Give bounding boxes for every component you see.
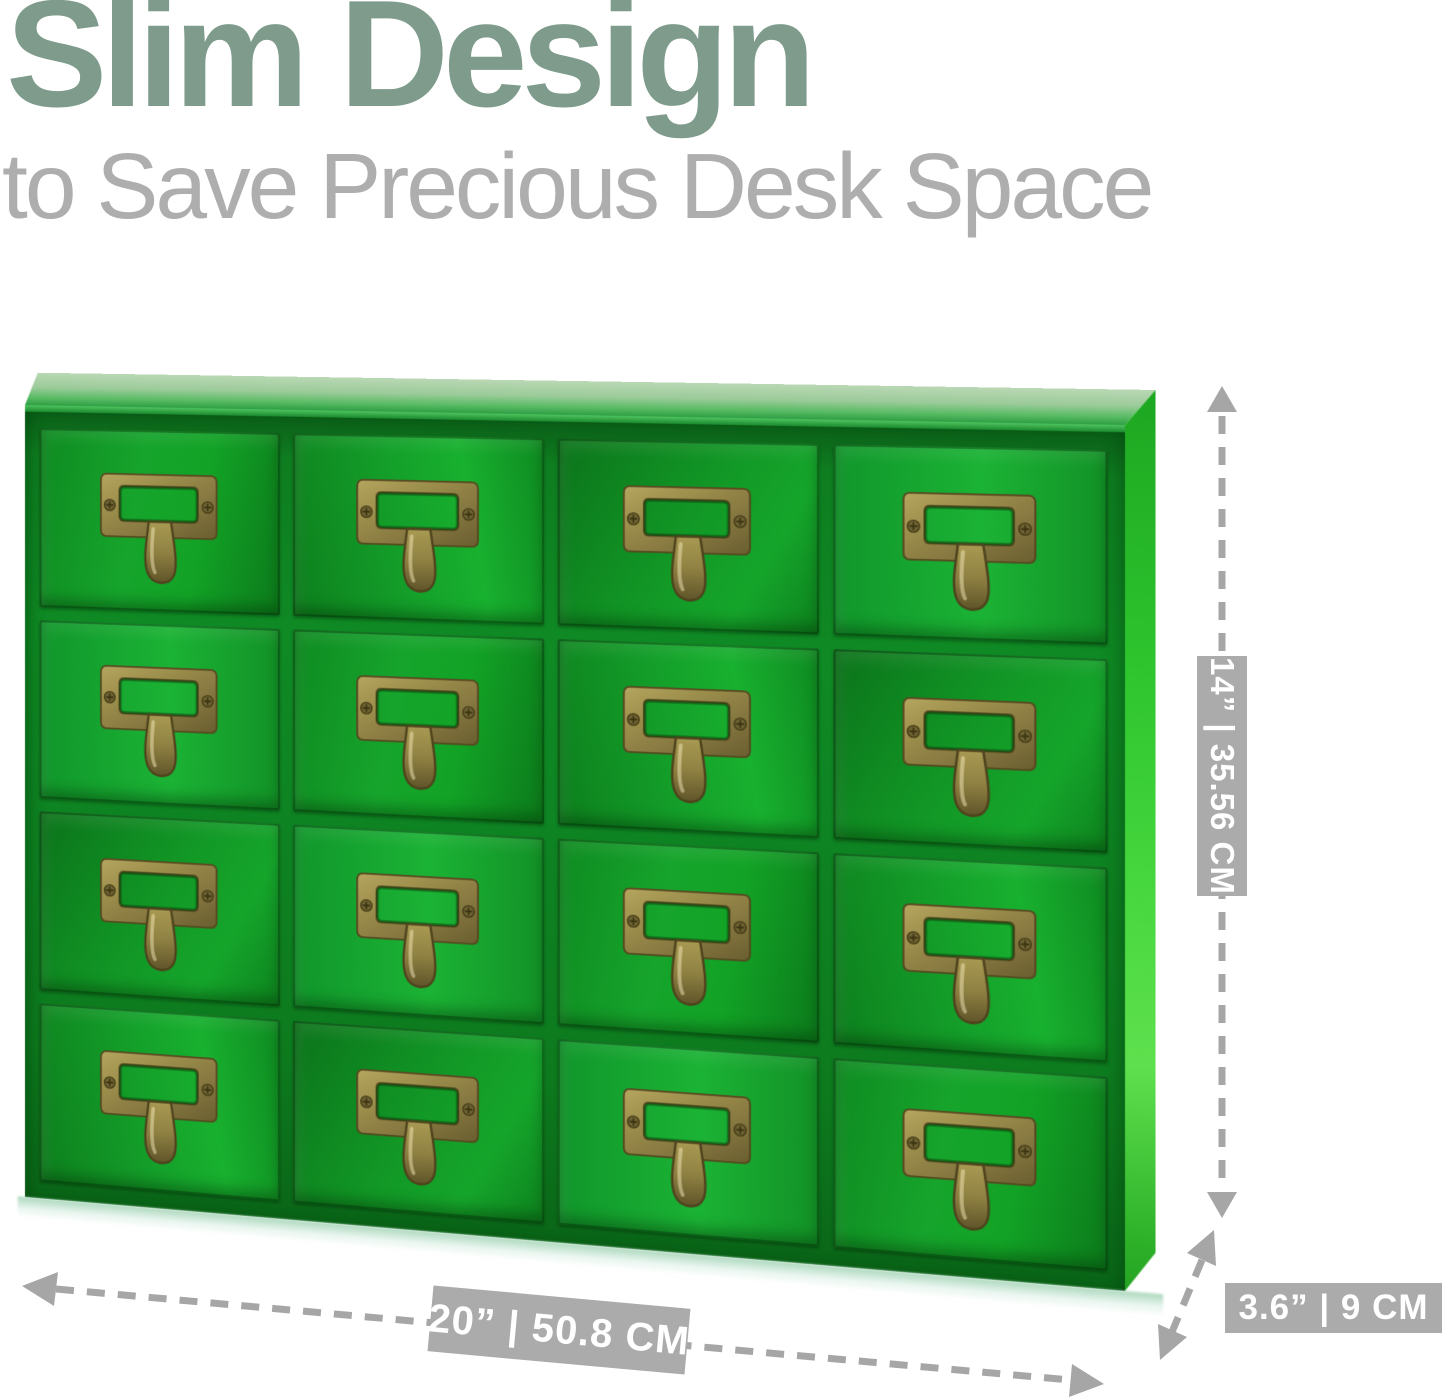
brass-label-pull-icon	[901, 489, 1039, 623]
drawer	[834, 853, 1108, 1062]
screw-icon	[1019, 730, 1031, 742]
pull-hook	[145, 908, 175, 971]
screw-icon	[1019, 938, 1031, 951]
brass-label-pull-icon	[621, 885, 753, 1020]
screw-icon	[628, 513, 640, 525]
pull-hook	[403, 924, 435, 988]
drawer	[293, 629, 544, 824]
screw-icon	[735, 516, 747, 528]
brass-label-pull-icon	[901, 695, 1039, 831]
screw-icon	[202, 1084, 213, 1096]
pull-hook	[673, 940, 706, 1006]
drawer-grid	[25, 405, 1125, 1291]
drawer	[557, 639, 819, 838]
screw-icon	[463, 707, 474, 719]
label-window	[926, 507, 1013, 545]
pull-hook	[403, 529, 435, 592]
screw-icon	[463, 508, 474, 520]
pull-hook	[403, 726, 435, 790]
drawer	[40, 428, 280, 615]
brass-label-pull-icon	[621, 684, 753, 817]
label-window	[926, 919, 1013, 960]
screw-icon	[202, 502, 213, 513]
pull-hook	[145, 521, 175, 583]
label-window	[120, 680, 197, 716]
screw-icon	[104, 1077, 115, 1089]
page-title: Slim Design	[6, 0, 810, 130]
pull-hook	[954, 544, 989, 610]
brass-label-pull-icon	[98, 856, 219, 985]
brass-label-pull-icon	[354, 870, 480, 1002]
drawer	[834, 649, 1108, 853]
pull-hook	[403, 1121, 435, 1186]
label-window	[377, 493, 457, 529]
page-subtitle: to Save Precious Desk Space	[2, 140, 1151, 233]
screw-icon	[202, 890, 213, 902]
drawer	[557, 1039, 819, 1247]
screw-icon	[1019, 1145, 1031, 1158]
pull-hook	[673, 536, 706, 601]
brass-label-pull-icon	[354, 673, 480, 803]
pull-hook	[954, 957, 989, 1024]
label-window	[926, 1125, 1013, 1167]
screw-icon	[735, 921, 747, 933]
drawer	[557, 439, 819, 634]
arrow-down-icon	[1207, 1192, 1237, 1218]
label-window	[120, 1065, 197, 1104]
screw-icon	[628, 714, 640, 726]
depth-dimension-label: 3.6” | 9 CM	[1225, 1283, 1442, 1333]
cabinet-right-face	[1125, 390, 1156, 1330]
label-window	[926, 713, 1013, 752]
screw-icon	[361, 703, 372, 715]
screw-icon	[361, 899, 372, 911]
arrow-right-icon	[1069, 1364, 1104, 1397]
screw-icon	[104, 692, 115, 703]
screw-icon	[908, 931, 920, 943]
pull-hook	[954, 750, 989, 817]
height-dimension-label: 14” | 35.56 CM	[1197, 656, 1247, 896]
drawer	[40, 1003, 280, 1201]
screw-icon	[361, 506, 372, 518]
drawer	[293, 825, 544, 1024]
pull-hook	[954, 1163, 989, 1231]
label-window	[645, 1104, 728, 1145]
screw-icon	[104, 884, 115, 896]
brass-label-pull-icon	[98, 663, 219, 790]
label-window	[645, 701, 728, 739]
screw-icon	[202, 696, 213, 708]
pull-hook	[673, 1142, 706, 1208]
screw-icon	[908, 520, 920, 532]
cabinet-front-face	[25, 405, 1125, 1291]
pull-hook	[145, 715, 175, 777]
brass-label-pull-icon	[621, 483, 753, 614]
drawer	[834, 444, 1108, 644]
drawer	[557, 839, 819, 1043]
drawer	[293, 433, 544, 624]
screw-icon	[628, 1116, 640, 1128]
product-dimension-image: Slim Design to Save Precious Desk Space	[0, 0, 1445, 1398]
screw-icon	[104, 499, 115, 510]
brass-label-pull-icon	[354, 477, 480, 605]
pull-hook	[145, 1101, 175, 1164]
label-window	[645, 500, 728, 537]
screw-icon	[463, 1104, 474, 1116]
screw-icon	[908, 726, 920, 738]
brass-label-pull-icon	[98, 1048, 219, 1179]
label-window	[120, 487, 197, 522]
label-window	[377, 690, 457, 727]
cabinet	[25, 405, 1125, 1291]
label-window	[645, 903, 728, 943]
pull-hook	[673, 738, 706, 803]
label-window	[377, 887, 457, 926]
brass-label-pull-icon	[621, 1086, 753, 1223]
brass-label-pull-icon	[98, 471, 219, 596]
screw-icon	[1019, 523, 1031, 535]
screw-icon	[628, 915, 640, 927]
screw-icon	[908, 1137, 920, 1150]
arrow-up-icon	[1207, 386, 1237, 412]
brass-label-pull-icon	[901, 1106, 1039, 1247]
drawer	[293, 1020, 544, 1223]
label-window	[120, 872, 197, 910]
drawer	[834, 1058, 1108, 1271]
label-window	[377, 1084, 457, 1124]
screw-icon	[735, 1124, 747, 1136]
brass-label-pull-icon	[901, 901, 1039, 1040]
screw-icon	[361, 1096, 372, 1108]
screw-icon	[735, 718, 747, 730]
drawer	[40, 811, 280, 1005]
screw-icon	[463, 905, 474, 917]
arrow-left-icon	[22, 1272, 58, 1306]
brass-label-pull-icon	[354, 1067, 480, 1201]
drawer	[40, 620, 280, 811]
